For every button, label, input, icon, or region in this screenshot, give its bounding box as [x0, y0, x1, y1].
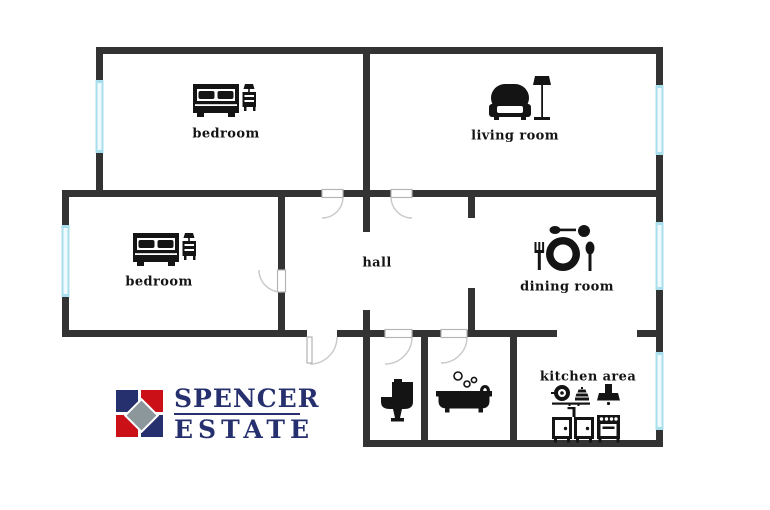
logo-mark	[116, 390, 164, 438]
window-icon	[96, 80, 104, 153]
door-icon	[322, 190, 343, 219]
room-label-bedroom-top: bedroom	[192, 127, 259, 142]
armchair-and-floor-lamp-icon	[489, 76, 551, 120]
logo-word-estate: ESTATE	[174, 417, 320, 442]
room-label-living-room: living room	[471, 129, 559, 144]
door-icon	[385, 330, 412, 365]
double-bed-with-nightstand-icon	[133, 233, 196, 266]
window-icon	[656, 222, 664, 290]
door-icon	[307, 337, 337, 364]
window-icon	[62, 225, 70, 297]
room-label-hall: hall	[362, 256, 391, 271]
room-label-dining-room: dining room	[520, 280, 614, 295]
bathtub-with-bubbles-icon	[436, 372, 492, 413]
logo-text: SPENCER ESTATE	[174, 386, 320, 442]
kitchen-appliances-icons	[551, 384, 620, 443]
room-label-kitchen-area: kitchen area	[540, 370, 636, 385]
window-icon	[656, 85, 664, 155]
door-icon	[441, 330, 467, 364]
spencer-estate-logo: SPENCER ESTATE	[116, 386, 320, 442]
door-icon	[391, 190, 412, 219]
toilet-icon	[381, 379, 413, 422]
floorplan-canvas: bedroom living room bedroom hall dining …	[0, 0, 770, 510]
room-label-bedroom-left: bedroom	[125, 275, 192, 290]
door-icon	[259, 270, 286, 292]
double-bed-with-nightstand-icon	[193, 84, 256, 117]
logo-word-spencer: SPENCER	[174, 386, 320, 411]
window-icon	[656, 352, 664, 430]
plate-with-cutlery-icon	[535, 225, 595, 271]
